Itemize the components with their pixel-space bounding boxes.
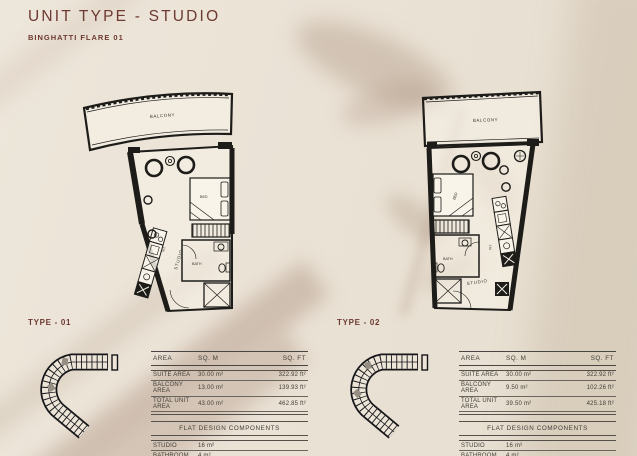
type-01-label: TYPE - 01 bbox=[28, 318, 71, 327]
col-sqm: SQ. M bbox=[198, 355, 258, 362]
keyplan-annex bbox=[112, 355, 118, 370]
col-sqm: SQ. M bbox=[506, 355, 566, 362]
table-row: SUITE AREA 30.00 m² 322.92 ft² bbox=[459, 371, 616, 381]
row-label: BATHROOM bbox=[461, 453, 506, 456]
table-header: AREA SQ. M SQ. FT bbox=[459, 351, 616, 366]
bed: BED bbox=[433, 174, 473, 216]
row-sqm: 30.00 m² bbox=[506, 372, 566, 378]
wardrobe bbox=[433, 220, 469, 233]
keyplan-type-01 bbox=[28, 346, 120, 446]
divider bbox=[459, 412, 616, 415]
divider bbox=[151, 412, 308, 415]
table-body: SUITE AREA 30.00 m² 322.92 ft² BALCONY A… bbox=[151, 370, 308, 412]
row-label: BATHROOM bbox=[153, 453, 198, 456]
table-body: SUITE AREA 30.00 m² 322.92 ft² BALCONY A… bbox=[459, 370, 616, 412]
table-header: AREA SQ. M SQ. FT bbox=[151, 351, 308, 366]
row-value: 16 m² bbox=[198, 443, 258, 449]
row-sqft: 102.26 ft² bbox=[566, 385, 614, 391]
table-row: TOTAL UNIT AREA 39.50 m² 425.18 ft² bbox=[459, 397, 616, 413]
row-label: STUDIO bbox=[461, 443, 506, 449]
area-table-type-02: AREA SQ. M SQ. FT SUITE AREA 30.00 m² 32… bbox=[459, 351, 616, 456]
row-sqm: 9.50 m² bbox=[506, 385, 566, 391]
wall-column bbox=[218, 142, 232, 149]
bed: BED bbox=[190, 178, 230, 220]
wall-column bbox=[128, 147, 140, 153]
row-sqft: 462.85 ft² bbox=[258, 401, 306, 407]
components-body: STUDIO 16 m² BATHROOM 4 m² KITCHEN 7 m² bbox=[459, 440, 616, 456]
wall-column bbox=[427, 142, 437, 148]
balcony-label: BALCONY bbox=[473, 117, 498, 123]
brochure-page: UNIT TYPE - STUDIO BINGHATTI FLARE 01 BA… bbox=[0, 0, 637, 456]
row-label: SUITE AREA bbox=[461, 372, 506, 378]
wall-column bbox=[527, 139, 539, 146]
balcony: BALCONY bbox=[84, 93, 232, 150]
row-label: STUDIO bbox=[153, 443, 198, 449]
floorplan-type-02: BALCONY BED bbox=[403, 82, 553, 312]
row-sqft: 139.93 ft² bbox=[258, 385, 306, 391]
project-name: BINGHATTI FLARE 01 bbox=[28, 33, 220, 42]
row-value: 16 m² bbox=[506, 443, 566, 449]
col-sqft: SQ. FT bbox=[566, 355, 614, 362]
components-title: FLAT DESIGN COMPONENTS bbox=[151, 421, 308, 436]
table-row: STUDIO 16 m² bbox=[151, 441, 308, 451]
keyplan-type-02 bbox=[338, 346, 430, 446]
keyplan-unit-highlight bbox=[61, 358, 68, 366]
row-sqft: 322.92 ft² bbox=[258, 372, 306, 378]
row-value: 4 m² bbox=[198, 453, 258, 456]
bath-label: BATH bbox=[443, 257, 453, 261]
col-area: AREA bbox=[153, 355, 198, 362]
row-label: BALCONY AREA bbox=[461, 382, 506, 394]
row-value: 4 m² bbox=[506, 453, 566, 456]
row-sqft: 322.92 ft² bbox=[566, 372, 614, 378]
bed-label: BED bbox=[200, 195, 208, 199]
type-02-label: TYPE - 02 bbox=[337, 318, 380, 327]
table-row: SUITE AREA 30.00 m² 322.92 ft² bbox=[151, 371, 308, 381]
components-body: STUDIO 16 m² BATHROOM 4 m² KITCHEN 7 m² bbox=[151, 440, 308, 456]
row-label: SUITE AREA bbox=[153, 372, 198, 378]
page-header: UNIT TYPE - STUDIO BINGHATTI FLARE 01 bbox=[28, 8, 220, 42]
table-row: TOTAL UNIT AREA 43.00 m² 462.85 ft² bbox=[151, 397, 308, 413]
row-sqm: 30.00 m² bbox=[198, 372, 258, 378]
table-row: BATHROOM 4 m² bbox=[151, 451, 308, 456]
col-area: AREA bbox=[461, 355, 506, 362]
row-sqm: 43.00 m² bbox=[198, 401, 258, 407]
wardrobe bbox=[192, 224, 230, 237]
row-sqft: 425.18 ft² bbox=[566, 401, 614, 407]
table-row: STUDIO 16 m² bbox=[459, 441, 616, 451]
row-label: BALCONY AREA bbox=[153, 382, 198, 394]
table-row: BATHROOM 4 m² bbox=[459, 451, 616, 456]
plant bbox=[515, 151, 526, 162]
row-label: TOTAL UNIT AREA bbox=[153, 398, 198, 410]
table-row: BALCONY AREA 9.50 m² 102.26 ft² bbox=[459, 381, 616, 397]
table-row: BALCONY AREA 13.00 m² 139.93 ft² bbox=[151, 381, 308, 397]
floorplan-type-01: BALCONY BED bbox=[80, 84, 238, 312]
balcony: BALCONY bbox=[423, 92, 542, 146]
area-table-type-01: AREA SQ. M SQ. FT SUITE AREA 30.00 m² 32… bbox=[151, 351, 308, 456]
row-sqm: 13.00 m² bbox=[198, 385, 258, 391]
row-label: TOTAL UNIT AREA bbox=[461, 398, 506, 410]
row-sqm: 39.50 m² bbox=[506, 401, 566, 407]
page-title: UNIT TYPE - STUDIO bbox=[28, 8, 220, 26]
bath-label: BATH bbox=[192, 262, 202, 266]
col-sqft: SQ. FT bbox=[258, 355, 306, 362]
keyplan-annex bbox=[422, 355, 428, 370]
components-title: FLAT DESIGN COMPONENTS bbox=[459, 421, 616, 436]
